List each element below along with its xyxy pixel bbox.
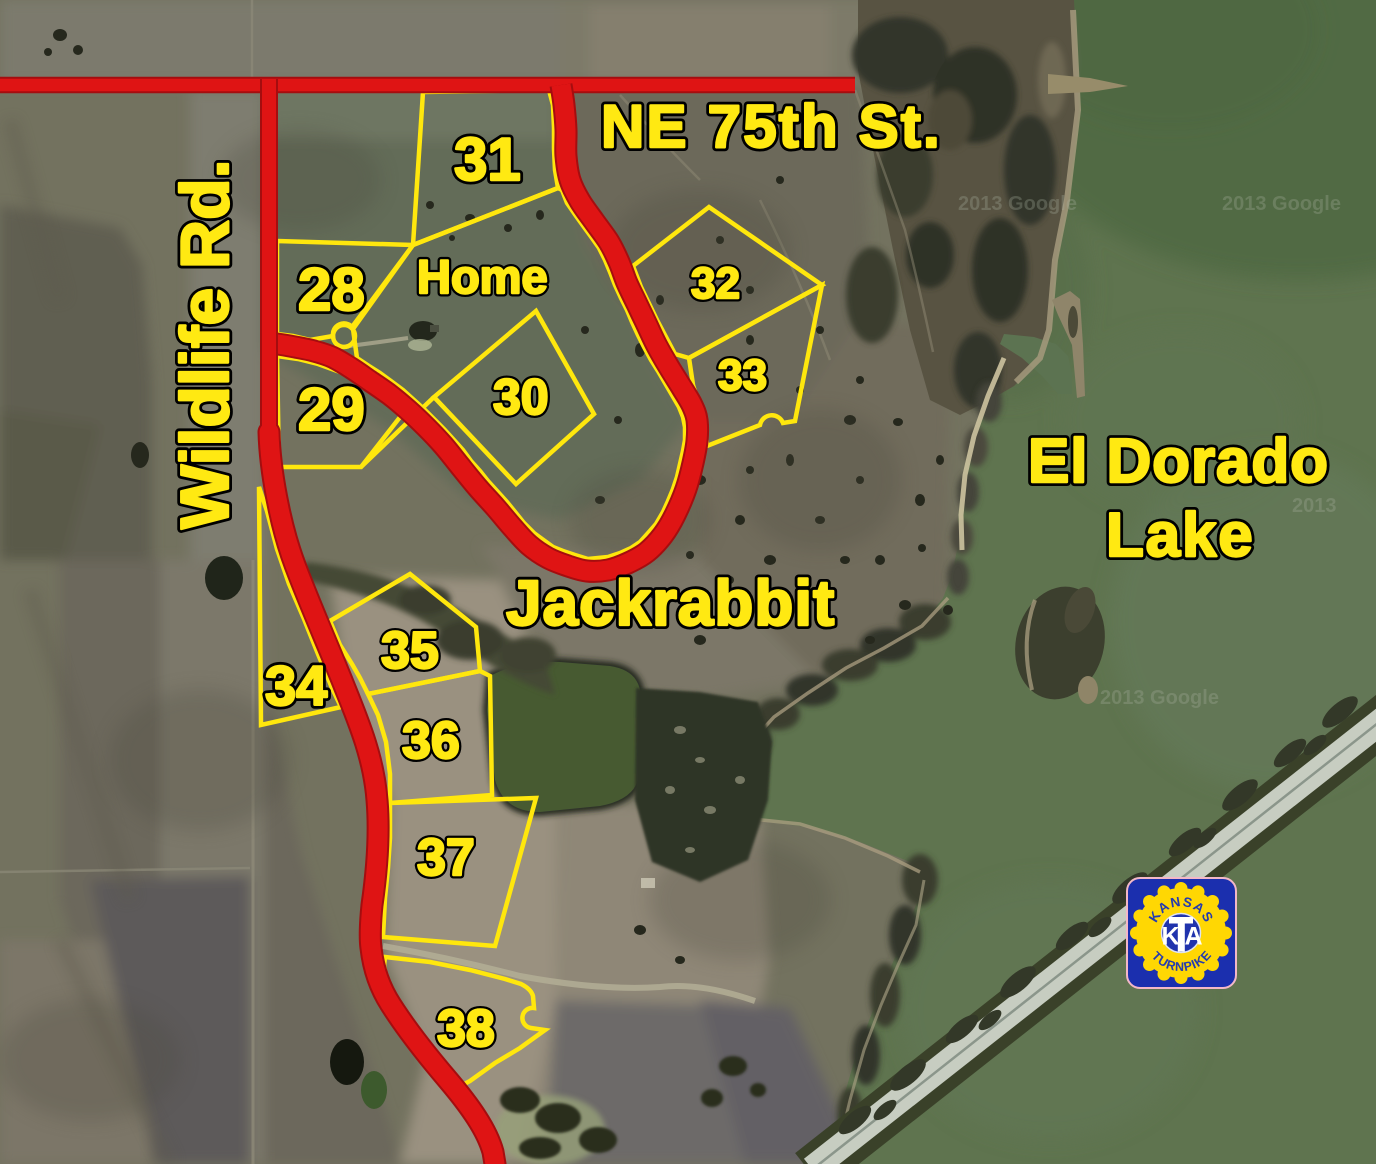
svg-text:38: 38 xyxy=(437,1000,495,1058)
svg-text:Home: Home xyxy=(417,250,548,303)
svg-text:33: 33 xyxy=(718,351,767,400)
svg-text:36: 36 xyxy=(402,712,460,770)
svg-text:37: 37 xyxy=(417,829,475,887)
svg-text:35: 35 xyxy=(381,622,439,680)
svg-text:El Dorado: El Dorado xyxy=(1028,427,1329,496)
svg-text:31: 31 xyxy=(454,126,521,193)
svg-text:K: K xyxy=(1161,923,1179,951)
svg-text:28: 28 xyxy=(298,256,365,323)
svg-text:29: 29 xyxy=(298,376,365,443)
svg-text:32: 32 xyxy=(691,259,740,308)
svg-text:NE 75th St.: NE 75th St. xyxy=(601,93,942,160)
svg-text:2013 Google: 2013 Google xyxy=(1100,687,1219,709)
svg-text:2013 Google: 2013 Google xyxy=(958,193,1077,215)
svg-text:30: 30 xyxy=(493,369,549,425)
svg-text:2013 Google: 2013 Google xyxy=(1222,193,1341,215)
svg-text:Wildlife Rd.: Wildlife Rd. xyxy=(167,159,243,529)
svg-text:34: 34 xyxy=(265,654,327,717)
svg-text:A: A xyxy=(1184,923,1202,951)
svg-text:2013: 2013 xyxy=(1292,495,1337,517)
svg-text:Jackrabbit: Jackrabbit xyxy=(506,567,835,639)
svg-text:Lake: Lake xyxy=(1106,501,1255,570)
